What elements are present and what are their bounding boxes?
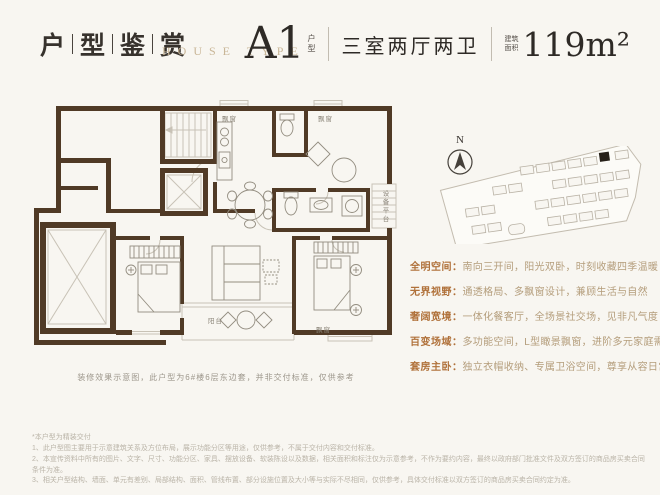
balcony-label: 阳台 [208, 315, 223, 325]
plan-walls [34, 106, 392, 345]
feature-item: 百变场域：多功能空间，L型瞰景飘窗，进阶多元家庭需求 [410, 333, 658, 348]
coffee-table [263, 260, 279, 272]
floor-plan-drawing [32, 100, 400, 366]
toilet [280, 114, 294, 120]
feature-item: 套房主卧：独立衣帽收纳、专属卫浴空间，尊享从容日常 [410, 358, 658, 373]
floor-plan: 飘窗 飘窗 设备平台 阳台 飘窗 [32, 100, 400, 366]
equipment-platform-label: 设备平台 [379, 190, 389, 224]
unit-name: A1 [245, 22, 305, 66]
feature-label: 奢阔宽境： [410, 312, 463, 323]
desk [306, 142, 330, 166]
disclaimer-item: 3、相关户型结构、墙面、单元有差别、局部结构、面积、管线布置、部分设施位置及大小… [32, 476, 646, 487]
unit-area: 119m² [522, 28, 630, 61]
unit-name-tag: 户型 [307, 34, 316, 54]
bay-window-label: 飘窗 [318, 113, 333, 123]
highlighted-unit-marker [599, 152, 610, 162]
site-plan [434, 146, 654, 244]
unit-info: A1 户型 三室两厅两卫 建筑 面积 119m² [245, 22, 630, 66]
bed [314, 256, 350, 310]
bed [138, 262, 180, 312]
kitchen-counter [217, 122, 232, 180]
title-char: 户 [40, 26, 65, 62]
bay-window-label: 飘窗 [316, 324, 331, 334]
feature-item: 奢阔宽境：一体化餐客厅，全场景社交场，见非凡气度 [410, 308, 658, 323]
feature-item: 全明空间：南向三开间，阳光双卧，时刻收藏四季温暖 [410, 258, 658, 273]
feature-text: 南向三开间，阳光双卧，时刻收藏四季温暖 [463, 262, 659, 273]
wardrobe [130, 246, 180, 258]
compass-north-label: N [442, 134, 478, 146]
title-divider [112, 34, 113, 54]
plan-light-lines [48, 101, 396, 342]
title-char: 型 [80, 26, 105, 62]
area-tag-line2: 面积 [504, 45, 518, 52]
balcony-table [237, 311, 255, 329]
unit-divider [328, 27, 329, 61]
feature-list: 全明空间：南向三开间，阳光双卧，时刻收藏四季温暖 无界视野：通透格局、多飘窗设计… [410, 258, 658, 383]
poster-canvas: 户 型 鉴 赏 HOUSE TYPE A1 户型 三室两厅两卫 建筑 面积 11… [0, 0, 660, 495]
disclaimer-item: 2、本宣传资料中所有的图片、文字、尺寸、功能分区、家具、摆放设备、软装陈设以及数… [32, 455, 646, 477]
bay-window-label: 飘窗 [222, 113, 237, 123]
feature-label: 全明空间： [410, 262, 463, 273]
sofa [212, 246, 260, 300]
feature-text: 通透格局、多飘窗设计，兼顾生活与自然 [463, 287, 648, 298]
feature-label: 无界视野： [410, 287, 463, 298]
wardrobe [314, 242, 358, 253]
feature-label: 百变场域： [410, 337, 463, 348]
feature-label: 套房主卧： [410, 362, 463, 373]
title-divider [72, 34, 73, 54]
site-plan-group [438, 146, 649, 244]
title-char: 鉴 [120, 26, 145, 62]
washer [342, 196, 362, 216]
feature-text: 多功能空间，L型瞰景飘窗，进阶多元家庭需求 [463, 337, 660, 348]
feature-text: 一体化餐客厅，全场景社交场，见非凡气度 [463, 312, 659, 323]
chair [332, 158, 356, 182]
unit-divider [491, 27, 492, 61]
feature-item: 无界视野：通透格局、多飘窗设计，兼顾生活与自然 [410, 283, 658, 298]
disclaimer-note: *本户型为精装交付 [32, 433, 646, 444]
title-divider [152, 34, 153, 54]
dining-table [235, 190, 265, 220]
area-tag: 建筑 面积 [504, 35, 518, 53]
disclaimer-item: 1、此户型图主要用于示意建筑关系及方位布局，展示功能分区等用途，仅供参考，不属于… [32, 444, 646, 455]
disclaimer: *本户型为精装交付 1、此户型图主要用于示意建筑关系及方位布局，展示功能分区等用… [32, 433, 646, 487]
unit-rooms: 三室两厅两卫 [341, 30, 479, 59]
area-tag-line1: 建筑 [504, 36, 518, 43]
feature-text: 独立衣帽收纳、专属卫浴空间，尊享从容日常 [463, 362, 660, 373]
plan-caption: 装修效果示意图，此户型为6#楼6层东边套，并非交付标准，仅供参考 [32, 372, 400, 383]
